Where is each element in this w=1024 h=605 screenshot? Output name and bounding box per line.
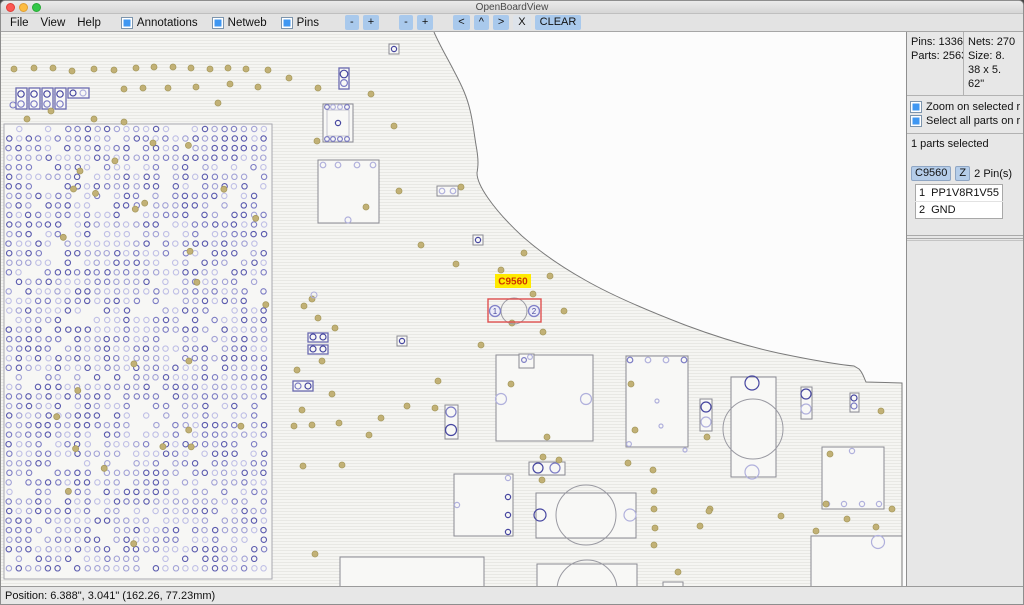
toggle-annotations[interactable]: Annotations <box>121 17 198 29</box>
stat-size-line1: Size: 8. <box>968 49 1022 63</box>
toggle-netweb[interactable]: Netweb <box>212 17 267 29</box>
window-title: OpenBoardView <box>1 2 1023 13</box>
zoom-on-selected-checkbox-icon[interactable] <box>910 101 922 113</box>
menu-file[interactable]: File <box>4 17 35 29</box>
sidebar: Pins: 1336 Parts: 2563 Nets: 270 Size: 8… <box>906 32 1024 588</box>
app-window: OpenBoardView File View Help Annotations… <box>0 0 1024 605</box>
options-panel: Zoom on selected r Select all parts on r <box>907 96 1024 134</box>
zoom-in-button[interactable]: + <box>363 15 379 30</box>
toggle-pins[interactable]: Pins <box>281 17 319 29</box>
clear-button[interactable]: CLEAR <box>535 15 582 30</box>
part-name-button[interactable]: C9560 <box>911 166 951 181</box>
cursor-position-text: Position: 6.388", 3.041" (162.26, 77.23m… <box>5 590 215 602</box>
annotations-label: Annotations <box>137 17 198 29</box>
option-zoom-on-selected[interactable]: Zoom on selected r <box>910 101 1024 113</box>
part-zoom-button[interactable]: Z <box>955 166 970 181</box>
pin-2-net[interactable]: GND <box>928 202 1002 219</box>
stat-size-line3: 62" <box>968 77 1022 91</box>
zoom-on-selected-label: Zoom on selected r <box>926 101 1020 113</box>
pin-2-number: 2 <box>916 202 929 219</box>
zoom-out-button[interactable]: - <box>345 15 359 30</box>
svg-text:2: 2 <box>532 307 537 316</box>
title-bar: OpenBoardView <box>1 1 1023 14</box>
mirror-button[interactable]: X <box>513 15 530 30</box>
option-select-all-parts[interactable]: Select all parts on r <box>910 115 1024 127</box>
pin-row-2[interactable]: 2 GND <box>916 202 1003 219</box>
pins-label: Pins <box>297 17 319 29</box>
sidebar-splitter-line <box>907 240 1024 241</box>
pins-checkbox-icon[interactable] <box>281 17 293 29</box>
stat-size-line2: 38 x 5. <box>968 63 1022 77</box>
menu-bar: File View Help Annotations Netweb Pins -… <box>1 14 1023 32</box>
menu-view[interactable]: View <box>35 17 72 29</box>
part-pin-count: 2 Pin(s) <box>974 168 1012 180</box>
pin-row-1[interactable]: 1 PP1V8R1V55 <box>916 185 1003 202</box>
stat-pins: Pins: 1336 <box>911 35 960 49</box>
stat-parts: Parts: 2563 <box>911 49 960 63</box>
board-view[interactable]: 12C9560 <box>1 32 906 588</box>
rotate-cw-button[interactable]: + <box>417 15 433 30</box>
select-all-parts-label: Select all parts on r <box>926 115 1020 127</box>
nav-left-button[interactable]: < <box>453 15 469 30</box>
netweb-checkbox-icon[interactable] <box>212 17 224 29</box>
stat-nets: Nets: 270 <box>968 35 1022 49</box>
rotate-ccw-button[interactable]: - <box>399 15 413 30</box>
netweb-label: Netweb <box>228 17 267 29</box>
pin-net-table: 1 PP1V8R1V55 2 GND <box>915 184 1003 219</box>
svg-text:C9560: C9560 <box>498 277 528 288</box>
svg-text:1: 1 <box>493 307 498 316</box>
nav-up-button[interactable]: ^ <box>474 15 489 30</box>
pin-1-net[interactable]: PP1V8R1V55 <box>928 185 1002 202</box>
selection-summary: 1 parts selected <box>907 134 1024 154</box>
status-bar: Position: 6.388", 3.041" (162.26, 77.23m… <box>1 586 1023 604</box>
sidebar-splitter-handle[interactable] <box>907 235 1024 239</box>
annotations-checkbox-icon[interactable] <box>121 17 133 29</box>
select-all-parts-checkbox-icon[interactable] <box>910 115 922 127</box>
board-stats-panel: Pins: 1336 Parts: 2563 Nets: 270 Size: 8… <box>907 32 1024 96</box>
pin-1-number: 1 <box>916 185 929 202</box>
board-canvas[interactable]: 12C9560 <box>1 32 906 588</box>
selected-part-header: C9560 Z 2 Pin(s) <box>911 166 1024 181</box>
nav-right-button[interactable]: > <box>493 15 509 30</box>
menu-help[interactable]: Help <box>71 17 107 29</box>
